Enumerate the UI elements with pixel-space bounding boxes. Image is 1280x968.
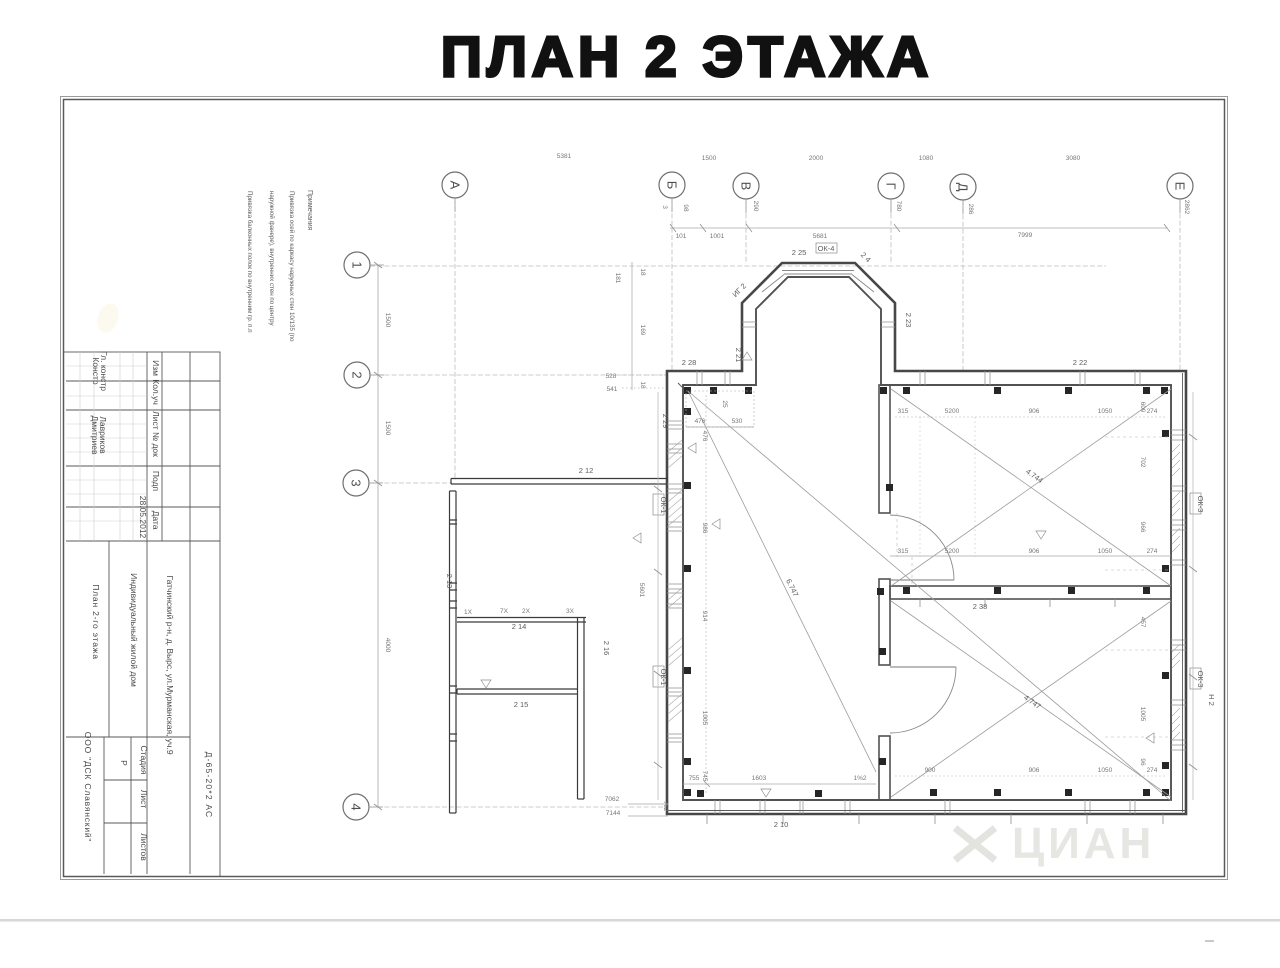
svg-text:Н 2: Н 2 xyxy=(1207,694,1216,706)
svg-text:5200: 5200 xyxy=(945,408,960,415)
svg-text:Д: Д xyxy=(956,183,971,192)
svg-text:1005: 1005 xyxy=(1139,707,1146,722)
svg-text:1001: 1001 xyxy=(710,233,725,240)
svg-text:Дмитриев: Дмитриев xyxy=(90,416,100,455)
svg-text:530: 530 xyxy=(732,418,743,425)
svg-text:1050: 1050 xyxy=(1098,767,1113,774)
svg-text:ООО "ДСК Славянский": ООО "ДСК Славянский" xyxy=(83,732,93,842)
svg-text:Лист № док: Лист № док xyxy=(151,411,161,457)
svg-text:2 10: 2 10 xyxy=(774,820,789,829)
svg-text:169: 169 xyxy=(639,325,646,336)
svg-text:541: 541 xyxy=(607,386,618,393)
svg-text:Кол.уч: Кол.уч xyxy=(151,379,161,405)
svg-text:181: 181 xyxy=(614,273,621,284)
svg-text:3: 3 xyxy=(661,205,668,209)
svg-text:5681: 5681 xyxy=(813,233,828,240)
svg-text:Р: Р xyxy=(119,760,129,766)
svg-text:ОК-1: ОК-1 xyxy=(659,669,668,686)
svg-text:План 2-го этажа: План 2-го этажа xyxy=(91,584,101,660)
svg-text:2 15: 2 15 xyxy=(514,700,529,709)
svg-text:1500: 1500 xyxy=(384,421,391,436)
svg-text:2 28: 2 28 xyxy=(682,358,697,367)
svg-text:Стадия: Стадия xyxy=(139,746,149,775)
svg-text:274: 274 xyxy=(1147,767,1158,774)
svg-text:986: 986 xyxy=(701,523,708,534)
svg-text:762: 762 xyxy=(662,801,669,812)
svg-text:ОК-3: ОК-3 xyxy=(1196,496,1205,513)
svg-text:2 23: 2 23 xyxy=(904,313,913,328)
svg-text:4: 4 xyxy=(349,803,364,810)
svg-text:290: 290 xyxy=(752,201,759,212)
svg-text:Привязка балконных полок по вн: Привязка балконных полок по внутренним г… xyxy=(246,191,253,333)
svg-text:В: В xyxy=(739,182,754,191)
svg-text:1603: 1603 xyxy=(752,775,767,782)
svg-text:Е: Е xyxy=(1173,182,1188,191)
svg-text:Подп: Подп xyxy=(151,471,161,492)
svg-text:2 12: 2 12 xyxy=(579,466,594,475)
svg-text:906: 906 xyxy=(1029,767,1040,774)
svg-text:914: 914 xyxy=(701,611,708,622)
svg-text:906: 906 xyxy=(1029,408,1040,415)
svg-text:Г: Г xyxy=(884,182,899,189)
svg-text:1005: 1005 xyxy=(701,711,708,726)
svg-text:Дата: Дата xyxy=(151,511,161,530)
svg-text:2 29: 2 29 xyxy=(661,414,670,429)
svg-text:3Х: 3Х xyxy=(566,608,575,615)
svg-text:5200: 5200 xyxy=(945,548,960,555)
svg-text:286: 286 xyxy=(967,204,974,215)
svg-text:2862: 2862 xyxy=(1183,200,1190,215)
svg-text:Гатчинский р-н, д. Вырс, ул.Му: Гатчинский р-н, д. Вырс, ул.Мурманская, … xyxy=(165,575,175,754)
svg-text:2: 2 xyxy=(350,371,365,378)
svg-text:476: 476 xyxy=(695,418,706,425)
svg-text:4000: 4000 xyxy=(384,638,391,653)
svg-text:Д-65-20*2 АС: Д-65-20*2 АС xyxy=(204,752,214,819)
svg-text:2 25: 2 25 xyxy=(792,248,807,257)
svg-text:Констр: Констр xyxy=(91,357,101,385)
svg-text:25: 25 xyxy=(721,400,728,408)
svg-text:18: 18 xyxy=(639,268,646,276)
svg-text:609: 609 xyxy=(1139,402,1146,413)
svg-text:274: 274 xyxy=(1147,548,1158,555)
svg-text:2 16: 2 16 xyxy=(602,641,611,656)
svg-text:5601: 5601 xyxy=(638,583,645,598)
svg-text:2Х: 2Х xyxy=(522,608,531,615)
svg-text:966: 966 xyxy=(1139,522,1146,533)
svg-text:1500: 1500 xyxy=(384,313,391,328)
svg-text:780: 780 xyxy=(895,201,902,212)
svg-text:Б: Б xyxy=(665,181,680,190)
svg-text:96: 96 xyxy=(1139,758,1146,766)
svg-text:528: 528 xyxy=(606,373,617,380)
svg-text:ОК-3: ОК-3 xyxy=(1196,671,1205,688)
svg-text:Листов: Листов xyxy=(139,833,149,861)
svg-text:2 22: 2 22 xyxy=(1073,358,1088,367)
svg-text:7Х: 7Х xyxy=(500,608,509,615)
svg-text:28.05.2012: 28.05.2012 xyxy=(138,496,148,539)
svg-text:315: 315 xyxy=(898,408,909,415)
svg-text:1500: 1500 xyxy=(702,155,717,162)
svg-text:Привязка осей по каркасу наруж: Привязка осей по каркасу наружных стен 1… xyxy=(288,191,295,342)
svg-text:Примечания: Примечания xyxy=(306,190,313,231)
svg-text:1%2: 1%2 xyxy=(853,775,866,782)
svg-text:1: 1 xyxy=(350,261,365,268)
svg-text:457: 457 xyxy=(1139,617,1146,628)
svg-text:2 13: 2 13 xyxy=(445,574,454,589)
svg-text:2 14: 2 14 xyxy=(512,622,527,631)
svg-text:476: 476 xyxy=(701,431,708,442)
svg-text:98: 98 xyxy=(682,204,689,212)
svg-text:1050: 1050 xyxy=(1098,408,1113,415)
svg-text:Лист: Лист xyxy=(139,790,149,809)
svg-text:755: 755 xyxy=(689,775,700,782)
svg-text:ОК-1: ОК-1 xyxy=(659,497,668,514)
svg-text:Индивидуальный жилой дом: Индивидуальный жилой дом xyxy=(129,573,139,687)
svg-text:3080: 3080 xyxy=(1066,155,1081,162)
svg-text:702: 702 xyxy=(1139,457,1146,468)
svg-text:1Х: 1Х xyxy=(464,609,473,616)
svg-text:906: 906 xyxy=(1029,548,1040,555)
svg-text:ОК-4: ОК-4 xyxy=(818,244,835,253)
svg-text:ЦИАН: ЦИАН xyxy=(1012,819,1155,868)
svg-text:2000: 2000 xyxy=(809,155,824,162)
svg-text:745: 745 xyxy=(701,771,708,782)
svg-text:7999: 7999 xyxy=(1018,232,1033,239)
svg-text:1080: 1080 xyxy=(919,155,934,162)
svg-text:3: 3 xyxy=(349,479,364,486)
svg-text:Изм: Изм xyxy=(151,360,161,376)
svg-text:5381: 5381 xyxy=(557,153,572,160)
svg-text:ПЛАН 2 ЭТАЖА: ПЛАН 2 ЭТАЖА xyxy=(441,25,933,89)
svg-text:900: 900 xyxy=(925,767,936,774)
svg-text:1050: 1050 xyxy=(1098,548,1113,555)
svg-text:315: 315 xyxy=(898,548,909,555)
svg-text:101: 101 xyxy=(676,233,687,240)
svg-text:А: А xyxy=(448,181,463,190)
svg-text:наружной фанере), внутренних с: наружной фанере), внутренних стен по цен… xyxy=(268,191,275,326)
svg-text:274: 274 xyxy=(1147,408,1158,415)
svg-text:7062: 7062 xyxy=(605,796,620,803)
svg-text:7144: 7144 xyxy=(606,810,621,817)
